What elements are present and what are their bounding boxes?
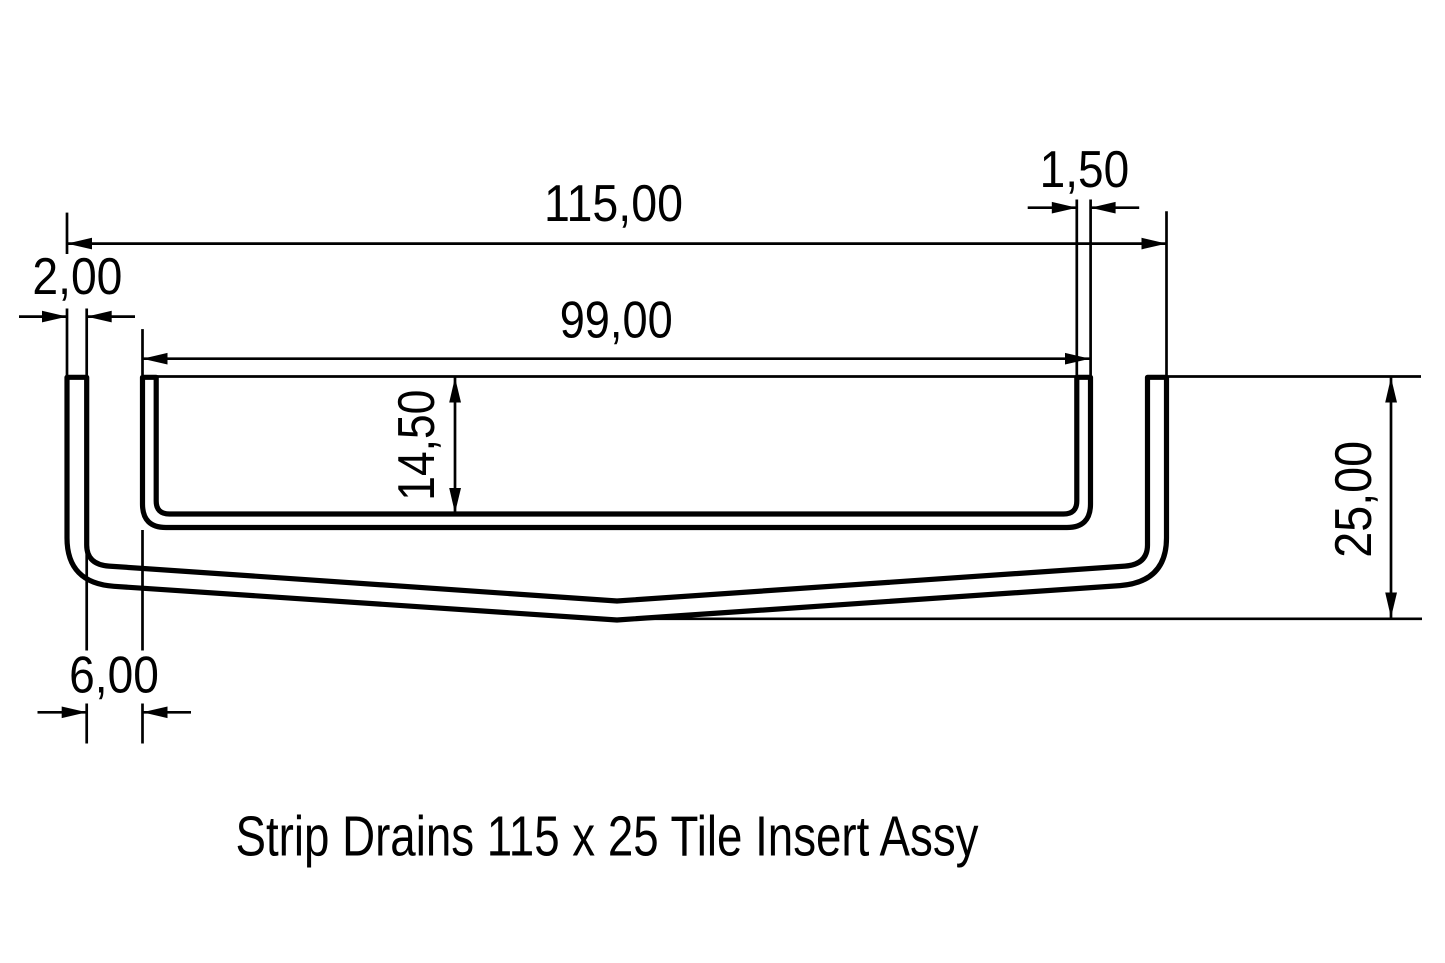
svg-text:6,00: 6,00: [69, 646, 159, 704]
svg-text:115,00: 115,00: [544, 174, 683, 232]
svg-text:Strip Drains 115 x 25 Tile Ins: Strip Drains 115 x 25 Tile Insert Assy: [236, 804, 980, 867]
svg-text:99,00: 99,00: [560, 290, 673, 348]
svg-text:25,00: 25,00: [1324, 441, 1382, 558]
svg-text:1,50: 1,50: [1040, 140, 1130, 198]
svg-text:2,00: 2,00: [32, 247, 122, 305]
svg-text:14,50: 14,50: [387, 390, 445, 501]
